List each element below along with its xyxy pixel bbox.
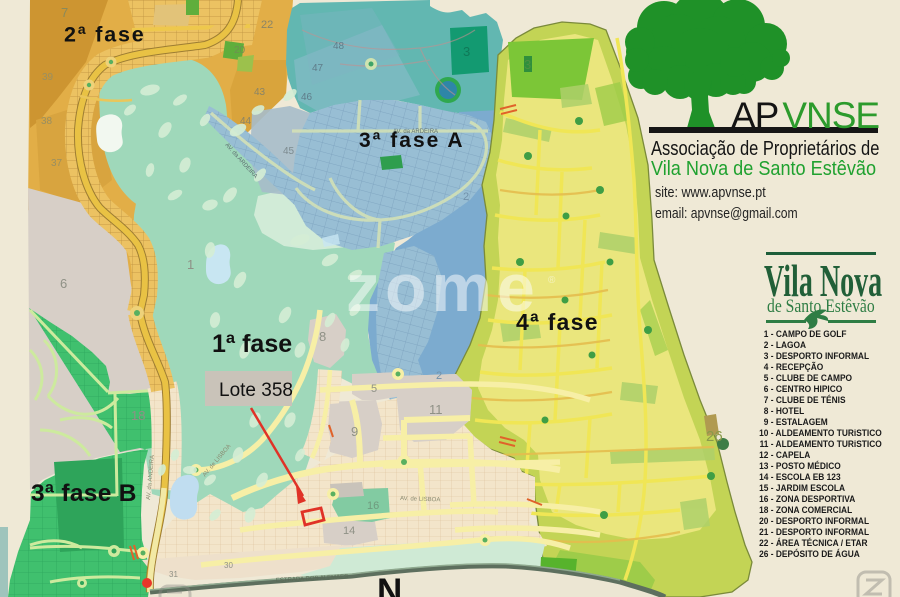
svg-text:30: 30: [224, 561, 233, 570]
svg-text:1: 1: [187, 257, 194, 272]
svg-text:20: 20: [234, 45, 246, 56]
svg-text:6: 6: [60, 276, 67, 291]
svg-text:zome: zome: [346, 250, 540, 326]
svg-text:Lote 358: Lote 358: [219, 380, 293, 401]
svg-text:5: 5: [371, 383, 377, 395]
svg-text:38: 38: [41, 116, 53, 127]
svg-text:18: 18: [131, 408, 145, 423]
svg-text:2ª fase: 2ª fase: [64, 23, 146, 47]
svg-text:7: 7: [61, 5, 68, 20]
svg-text:®: ®: [548, 275, 556, 286]
svg-text:45: 45: [283, 146, 295, 157]
svg-text:2: 2: [436, 370, 442, 382]
svg-text:11: 11: [429, 402, 443, 417]
svg-text:2: 2: [463, 191, 469, 203]
svg-text:22: 22: [261, 19, 273, 31]
svg-text:39: 39: [42, 72, 54, 83]
svg-text:43: 43: [254, 87, 266, 98]
svg-text:14: 14: [343, 525, 355, 537]
svg-text:37: 37: [51, 158, 63, 169]
svg-text:16: 16: [367, 500, 379, 512]
svg-text:AV. da ARDEIRA: AV. da ARDEIRA: [393, 129, 438, 135]
svg-text:3: 3: [524, 57, 531, 72]
svg-text:26: 26: [706, 428, 723, 445]
svg-text:3: 3: [463, 44, 470, 59]
svg-text:46: 46: [301, 92, 313, 103]
svg-text:1ª fase: 1ª fase: [212, 330, 292, 358]
svg-text:47: 47: [312, 63, 324, 74]
svg-text:8: 8: [319, 329, 326, 344]
svg-text:44: 44: [240, 116, 252, 127]
svg-text:31: 31: [169, 570, 178, 579]
svg-text:9: 9: [351, 424, 358, 439]
svg-text:48: 48: [333, 41, 345, 52]
svg-text:N: N: [377, 572, 402, 597]
svg-text:3ª fase B: 3ª fase B: [31, 480, 137, 507]
